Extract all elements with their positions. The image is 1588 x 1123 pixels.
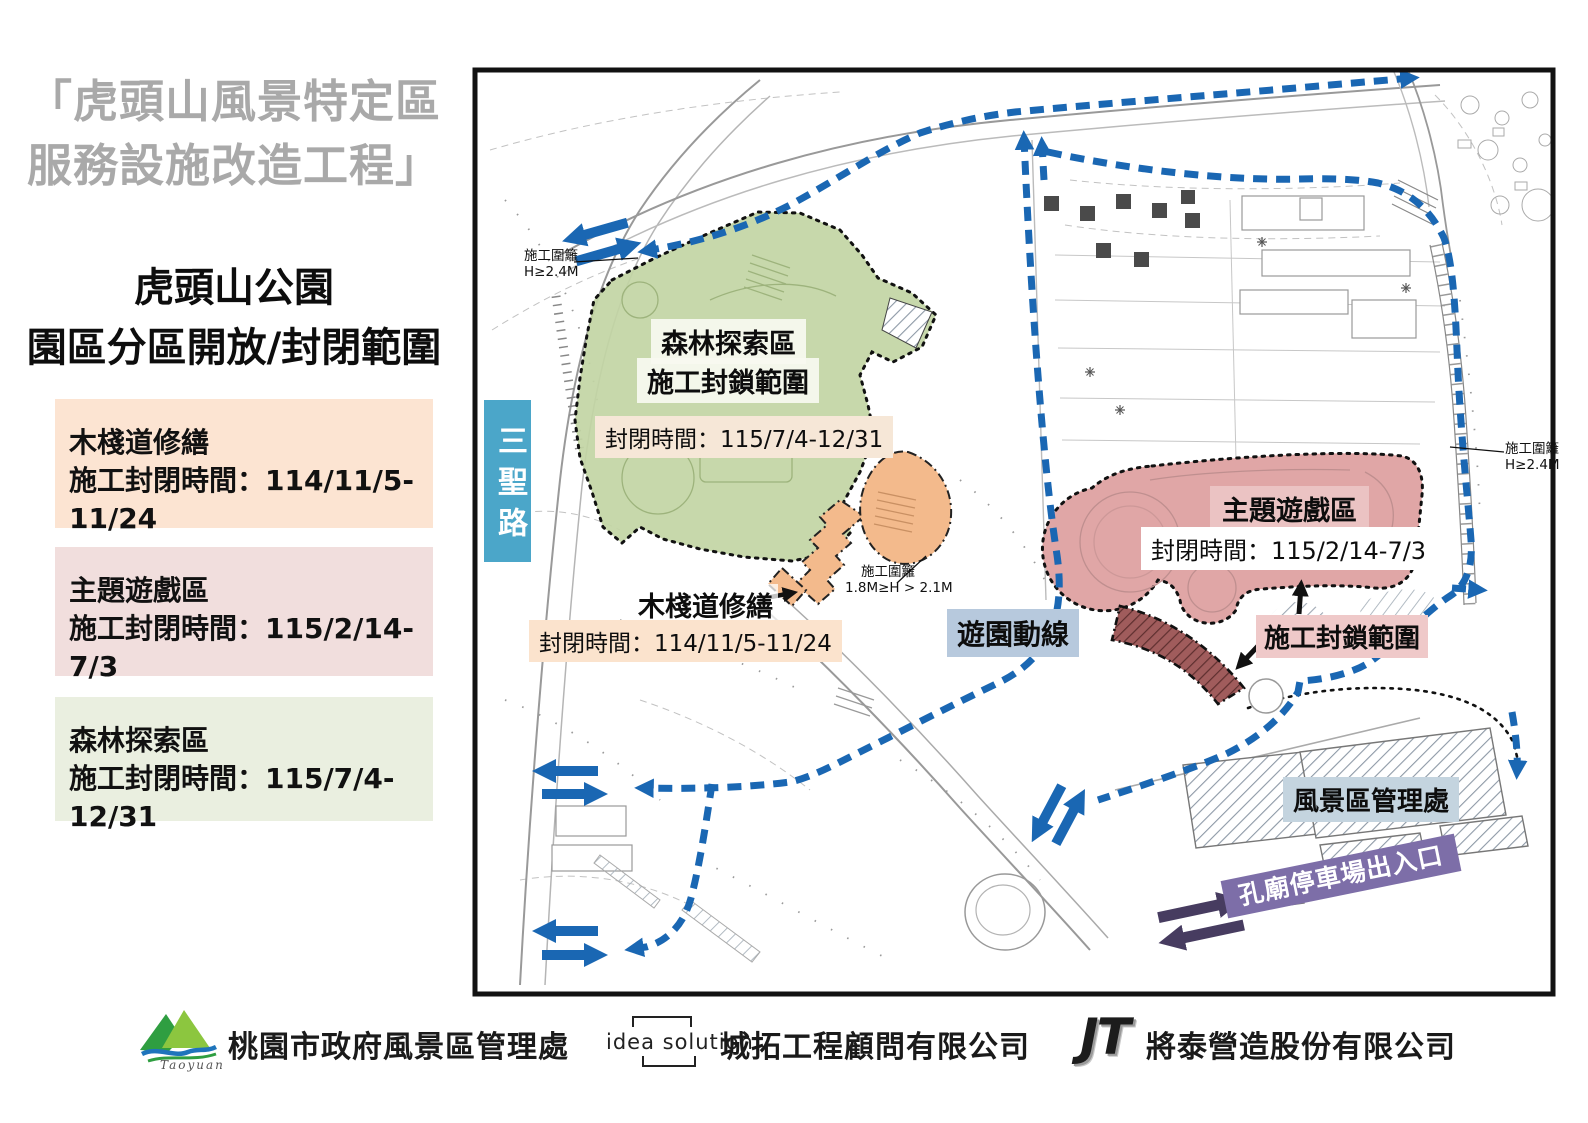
zone-name: 主題遊戲區 — [69, 572, 433, 610]
fence-note-line: 1.8M≥H > 2.1M — [845, 580, 953, 596]
fence-note-left: 施工圍籬 H≥2.4M — [524, 248, 579, 281]
project-title: 「虎頭山風景特定區 服務設施改造工程」 — [6, 70, 462, 198]
forest-zone-closure: 封閉時間：115/7/4-12/31 — [595, 416, 893, 458]
fence-note-line: H≥2.4M — [524, 264, 579, 280]
fence-note-line: H≥2.4M — [1505, 457, 1560, 473]
bracket-icon — [632, 1016, 692, 1027]
walkway-closure: 封閉時間：114/11/5-11/24 — [529, 620, 842, 662]
forest-zone-range-label: 施工封鎖範圍 — [637, 358, 819, 403]
page-title: 虎頭山公園 園區分區開放/封閉範圍 — [6, 258, 462, 378]
project-title-line2: 服務設施改造工程」 — [6, 134, 462, 198]
org-name-jiangtai: 將泰營造股份有限公司 — [1146, 1022, 1456, 1066]
zone-period: 施工封閉時間：114/11/5-11/24 — [69, 462, 433, 538]
legend-zone-theme: 主題遊戲區 施工封閉時間：115/2/14-7/3 — [55, 547, 433, 676]
plaza-circle — [1249, 679, 1283, 713]
legend-zone-forest: 森林探索區 施工封閉時間：115/7/4-12/31 — [55, 697, 433, 821]
theme-zone-closure: 封閉時間：115/2/14-7/3 — [1141, 527, 1436, 570]
taoyuan-logo-text: Taoyuan — [160, 1058, 225, 1072]
org-name-taoyuan: 桃園市政府風景區管理處 — [228, 1022, 569, 1066]
fence-note-line: 施工圍籬 — [1505, 441, 1560, 457]
jt-logo-icon: JT — [1080, 1008, 1129, 1066]
walkway-title: 木棧道修繕 — [633, 584, 778, 625]
zone-name: 木棧道修繕 — [69, 424, 433, 462]
bracket-icon — [642, 1056, 696, 1067]
park-subtitle: 園區分區開放/封閉範圍 — [6, 318, 462, 378]
zone-name: 森林探索區 — [69, 722, 433, 760]
fence-note-line: 施工圍籬 — [861, 564, 953, 580]
zone-period: 施工封閉時間：115/2/14-7/3 — [69, 610, 433, 686]
admin-office-label: 風景區管理處 — [1283, 777, 1459, 822]
fence-note-line: 施工圍籬 — [524, 248, 579, 264]
road-label-sansheng: 三聖路 — [484, 400, 531, 562]
park-name: 虎頭山公園 — [6, 258, 462, 318]
fence-note-mid: 施工圍籬 1.8M≥H > 2.1M — [845, 564, 953, 597]
poster: 「虎頭山風景特定區 服務設施改造工程」 虎頭山公園 園區分區開放/封閉範圍 木棧… — [0, 0, 1588, 1123]
zone-period: 施工封閉時間：115/7/4-12/31 — [69, 760, 433, 836]
project-title-line1: 「虎頭山風景特定區 — [6, 70, 462, 134]
legend-zone-walkway: 木棧道修繕 施工封閉時間：114/11/5-11/24 — [55, 399, 433, 528]
org-name-chengtuo: 城拓工程顧問有限公司 — [720, 1022, 1030, 1066]
theme-zone-title: 主題遊戲區 — [1210, 486, 1369, 531]
fence-note-right: 施工圍籬 H≥2.4M — [1505, 441, 1560, 474]
theme-zone-range-label: 施工封鎖範圍 — [1256, 615, 1428, 658]
visitor-route-label: 遊園動線 — [947, 609, 1079, 657]
